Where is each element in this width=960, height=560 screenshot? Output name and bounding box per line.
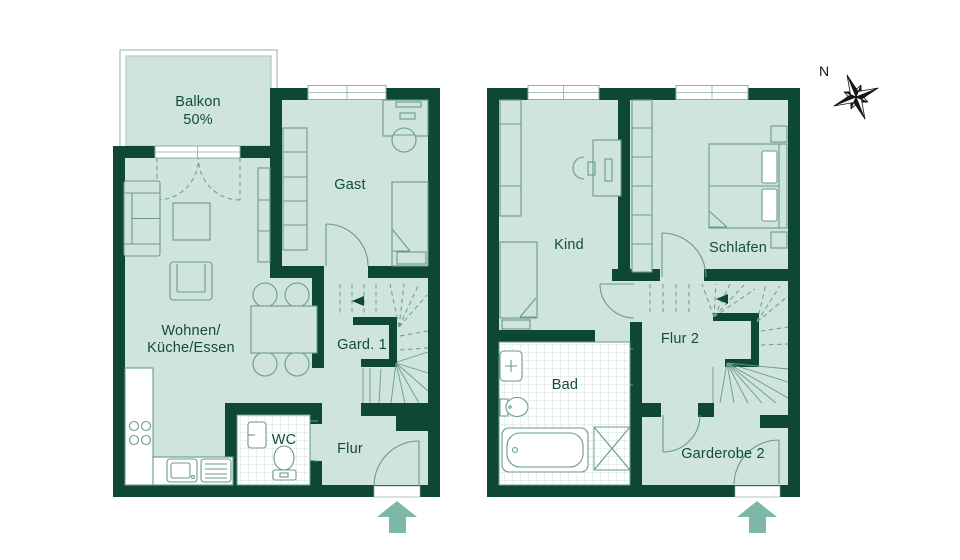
entry-threshold-upper [735,486,780,497]
label-gast: Gast [334,177,365,193]
wc-sink [248,422,266,448]
shelf [258,168,270,262]
bad-room [499,342,630,485]
label-garderobe2: Garderobe 2 [681,446,765,462]
wc-room [237,415,310,485]
entry-threshold-ground [374,486,420,497]
kind-wardrobe [500,100,521,216]
kind-window [528,86,599,100]
label-schlafen: Schlafen [709,240,767,256]
kitchen-sink [167,459,197,482]
shower [594,427,630,470]
label-wohnen-1: Wohnen/ [161,323,221,339]
label-kind: Kind [554,237,584,253]
kind-desk [593,140,621,196]
entrance-arrow-icon-upper [737,501,777,533]
nightstand-top [771,126,787,142]
floorplan-page: Balkon 50% Gast Wohnen/ Küche/Essen Gard… [0,0,960,560]
label-wohnen-2: Küche/Essen [147,340,235,356]
gast-chair [392,128,416,152]
entrance-arrow-icon-ground [377,501,417,533]
label-bad: Bad [552,377,578,393]
bathtub [502,428,588,472]
compass-north-label: N [819,63,829,79]
gast-wardrobe [283,128,307,250]
label-flur: Flur [337,441,363,457]
upper-floor-plan: Kind Schlafen Flur 2 Bad Garderobe 2 [487,86,800,498]
bad-toilet [500,398,528,417]
balcony-door-window [155,146,240,158]
wc-toilet [273,446,296,480]
gast-window [308,86,386,100]
compass-rose [825,66,887,128]
floorplan-canvas: Balkon 50% Gast Wohnen/ Küche/Essen Gard… [0,0,960,560]
double-bed [709,144,787,228]
label-gard1: Gard. 1 [337,337,387,353]
coffee-table [173,203,210,240]
gast-bed [392,182,428,266]
sofa [124,181,160,256]
kind-bed [500,242,537,329]
ground-floor-plan: Balkon 50% Gast Wohnen/ Küche/Essen Gard… [113,50,440,497]
schlafen-wardrobe [632,100,652,272]
bad-sink [500,351,522,381]
label-balkon: Balkon [175,94,221,110]
nightstand-bottom [771,232,787,248]
schlafen-window [676,86,748,100]
compass-icon: N [819,63,887,128]
label-wc: WC [272,432,297,448]
label-balkon-pct: 50% [183,112,213,128]
dishwasher [201,459,231,482]
label-flur2: Flur 2 [661,331,699,347]
armchair [170,262,212,300]
